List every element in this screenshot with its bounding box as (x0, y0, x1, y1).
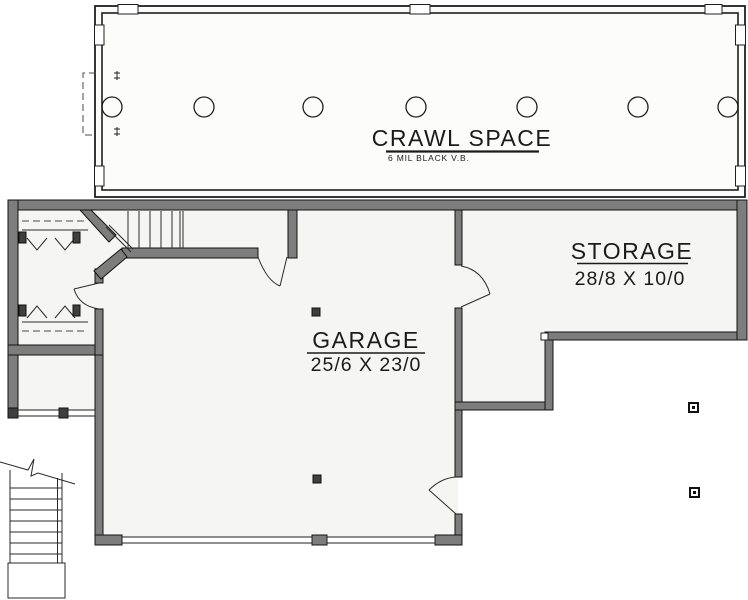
garage-post-upper (312, 308, 320, 316)
storage-east-wall (737, 200, 747, 340)
garage-label: GARAGE (312, 327, 419, 353)
garage-storage-divider-mid (455, 308, 462, 477)
dashed-chase-outline (83, 73, 96, 135)
north-wall (8, 200, 747, 210)
storage-dimensions: 28/8 X 10/0 (575, 268, 686, 290)
garage-door-right (327, 537, 435, 543)
storage-label: STORAGE (571, 238, 694, 264)
mech-south-wall (8, 345, 103, 355)
crawl-space-note: 6 MIL BLACK V.B. (388, 153, 470, 163)
deck-posts (689, 403, 699, 497)
garage-west-wall (95, 355, 103, 545)
garage-door-left (122, 537, 312, 543)
west-wall (8, 200, 18, 418)
garage-dimensions: 25/6 X 23/0 (311, 354, 422, 376)
garage-south-wall-left (95, 535, 122, 545)
stair-east-wall (288, 210, 297, 258)
stair-break-line (0, 459, 75, 484)
lower-level: GARAGE 25/6 X 23/0 STORAGE 28/8 X 10/0 (8, 200, 747, 545)
floor-plan-drawing: CRAWL SPACE 6 MIL BLACK V.B. (0, 0, 748, 600)
crawl-space-label: CRAWL SPACE (372, 125, 553, 151)
exterior-stairs (0, 459, 75, 598)
storage-step-wall-horizontal (455, 402, 553, 410)
alcove-window (8, 408, 95, 418)
storage-corner-post (541, 333, 548, 340)
garage-doors (122, 537, 435, 543)
storage-south-wall (545, 332, 747, 340)
storage-step-wall-vertical (545, 332, 553, 410)
garage-storage-divider-upper (455, 210, 462, 265)
crawl-space-room: CRAWL SPACE 6 MIL BLACK V.B. (83, 5, 746, 198)
mech-east-wall-lower (95, 309, 103, 355)
garage-south-wall-right (435, 535, 462, 545)
garage-post-lower (313, 475, 321, 483)
stair-south-wall (122, 248, 258, 258)
floor-plan-page: CRAWL SPACE 6 MIL BLACK V.B. (0, 0, 748, 600)
garage-door-center-post (312, 535, 327, 545)
